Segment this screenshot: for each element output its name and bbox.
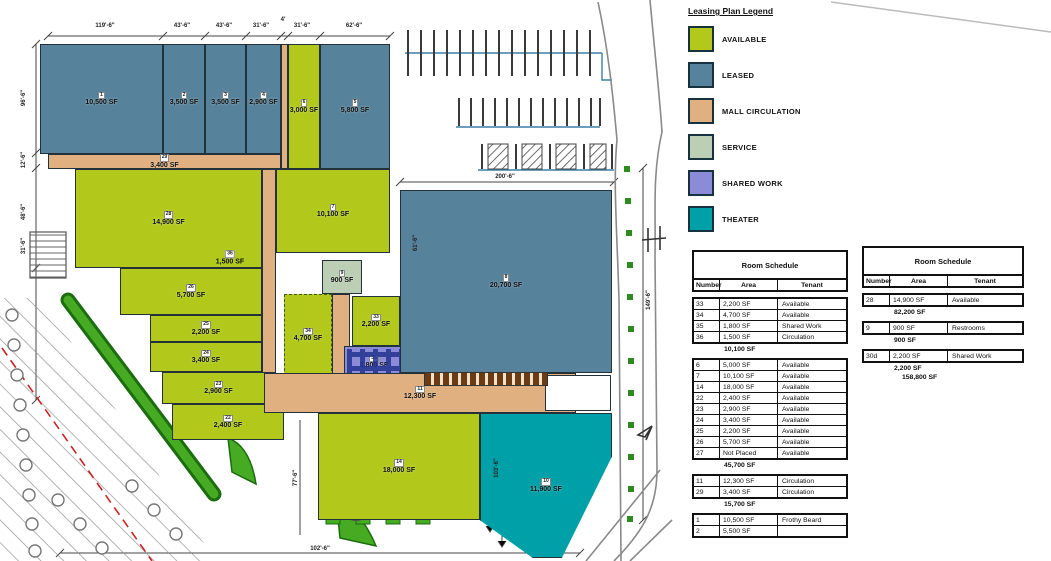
dimension-label: 103'-6" [494, 458, 500, 478]
cell-number: 2 [694, 526, 720, 536]
legend-swatch-available [688, 26, 714, 52]
unit-number: 2 [181, 92, 188, 100]
dimension-label: 61'-6" [413, 235, 419, 251]
unit-number: 4 [260, 92, 267, 100]
plan-unit-3: 33,500 SF [205, 44, 246, 154]
corridor-tables-decor [424, 372, 548, 386]
plan-unit-29: 293,400 SF [48, 154, 281, 169]
cell-number: 14 [694, 382, 720, 392]
cell-tenant: Available [778, 393, 846, 403]
cell-tenant: Available [778, 299, 846, 309]
plan-unit-5: 55,800 SF [320, 44, 390, 169]
schedule-row: 25,500 SF [694, 525, 846, 536]
legend-label: AVAILABLE [722, 35, 767, 44]
legend-swatch-theater [688, 206, 714, 232]
cell-number: 9 [864, 323, 890, 333]
column-header-area: Area [890, 276, 948, 286]
group-subtotal: 900 SF [862, 335, 1024, 344]
schedule-row: 265,700 SFAvailable [694, 436, 846, 447]
cell-area: 3,400 SF [720, 415, 778, 425]
cell-number: 35 [694, 321, 720, 331]
cell-number: 25 [694, 426, 720, 436]
legend-item-circulation: MALL CIRCULATION [688, 98, 838, 124]
unit-label: 110,500 SF [85, 91, 117, 108]
parking-row-2 [456, 98, 600, 127]
stairs [30, 232, 66, 278]
unit-number: 6 [301, 99, 308, 107]
unit-number: 29 [160, 154, 170, 162]
cell-tenant: Circulation [778, 476, 846, 486]
cell-number: 1 [694, 515, 720, 525]
dimension-label: 149'-6" [646, 290, 652, 310]
cell-number: 22 [694, 393, 720, 403]
schedule-group-2: 9900 SFRestrooms [862, 321, 1024, 335]
group-subtotal: 10,100 SF [692, 344, 848, 353]
street-trees [624, 166, 634, 522]
cell-area: 2,200 SF [720, 299, 778, 309]
schedule-group-1: 332,200 SFAvailable344,700 SFAvailable35… [692, 297, 848, 344]
unit-label: 820,700 SF [490, 273, 522, 290]
unit-label: 222,400 SF [214, 414, 242, 431]
cell-area: 2,400 SF [720, 393, 778, 403]
cell-tenant: Circulation [778, 332, 846, 342]
schedule-row: 30d2,200 SFShared Work [864, 351, 1022, 361]
unit-label: 293,400 SF [150, 153, 178, 170]
dimension-label: 77'-6" [293, 470, 299, 486]
plan-unit-x23 [545, 375, 611, 411]
legend-items: AVAILABLELEASEDMALL CIRCULATIONSERVICESH… [688, 26, 838, 232]
plan-unit-33: 332,200 SF [352, 296, 400, 346]
shared-work-desks-decor [347, 349, 401, 375]
room-schedule-title: Room Schedule [862, 246, 1024, 276]
cell-tenant: Frothy Beard [778, 515, 846, 525]
cell-number: 27 [694, 448, 720, 458]
legend-swatch-shared [688, 170, 714, 196]
legend-label: LEASED [722, 71, 754, 80]
column-header-area: Area [720, 280, 778, 290]
schedule-row: 243,400 SFAvailable [694, 414, 846, 425]
schedule-grand-total: 158,800 SF [862, 372, 1024, 381]
dimension-label: 31'-6" [253, 23, 269, 29]
schedule-group-3: 30d2,200 SFShared Work [862, 349, 1024, 363]
room-schedule-columns: NumberAreaTenant [862, 276, 1024, 288]
plan-unit-x4 [281, 44, 288, 169]
dimension-label: 12'-6" [21, 152, 27, 168]
plan-unit-6: 63,000 SF [288, 44, 320, 169]
schedule-group-1: 2814,900 SFAvailable [862, 293, 1024, 307]
cell-tenant: Available [778, 426, 846, 436]
cell-area: 1,500 SF [720, 332, 778, 342]
legend-label: THEATER [722, 215, 759, 224]
cell-tenant: Shared Work [778, 321, 846, 331]
schedule-row: 65,000 SFAvailable [694, 360, 846, 370]
cell-number: 6 [694, 360, 720, 370]
floor-plan: 110,500 SF23,500 SF33,500 SF42,900 SF63,… [0, 0, 680, 561]
cell-tenant: Available [778, 415, 846, 425]
dimension-label: 31'-6" [21, 238, 27, 254]
room-schedule-columns: NumberAreaTenant [692, 280, 848, 292]
leasing-plan-page: 110,500 SF23,500 SF33,500 SF42,900 SF63,… [0, 0, 1051, 561]
plan-unit-9: 9900 SF [322, 260, 362, 294]
legend-item-shared: SHARED WORK [688, 170, 838, 196]
schedule-row: 344,700 SFAvailable [694, 309, 846, 320]
column-header-tenant: Tenant [778, 280, 846, 290]
unit-label: 265,700 SF [177, 283, 205, 300]
cell-number: 7 [694, 371, 720, 381]
unit-label: 710,100 SF [317, 203, 349, 220]
cell-tenant: Available [778, 382, 846, 392]
cell-area: 12,300 SF [720, 476, 778, 486]
dimension-label: 43'-6" [174, 23, 190, 29]
unit-number: 22 [223, 415, 233, 423]
schedule-row: 232,900 SFAvailable [694, 403, 846, 414]
cell-tenant: Available [948, 295, 1022, 305]
unit-label: 9900 SF [331, 269, 354, 286]
schedule-row: 1112,300 SFCirculation [694, 476, 846, 486]
cell-area: 5,000 SF [720, 360, 778, 370]
schedule-group-3: 1112,300 SFCirculation293,400 SFCirculat… [692, 474, 848, 499]
cell-area: Not Placed [720, 448, 778, 458]
topright-road-line [831, 0, 1051, 40]
unit-label: 42,900 SF [249, 91, 277, 108]
legend-swatch-service [688, 134, 714, 160]
schedule-group-4: 110,500 SFFrothy Beard25,500 SF [692, 513, 848, 538]
cell-number: 33 [694, 299, 720, 309]
plan-unit-1: 110,500 SF [40, 44, 163, 154]
dimension-label: 119'-6" [95, 23, 114, 29]
plan-unit-24: 243,400 SF [150, 342, 262, 372]
cell-tenant: Available [778, 310, 846, 320]
cell-tenant: Circulation [778, 487, 846, 497]
cell-tenant: Available [778, 448, 846, 458]
schedule-row: 361,500 SFCirculation [694, 331, 846, 342]
plan-unit-x9 [262, 169, 276, 375]
plan-unit-34: 344,700 SF [284, 294, 332, 376]
column-header-number: Number [864, 276, 890, 286]
column-header-tenant: Tenant [948, 276, 1022, 286]
unit-number: 25 [201, 321, 211, 329]
plan-unit-7: 710,100 SF [276, 169, 390, 253]
cell-area: 900 SF [890, 323, 948, 333]
legend-label: SERVICE [722, 143, 757, 152]
unit-label: 232,900 SF [204, 380, 232, 397]
plan-unit-14: 1418,000 SF [318, 413, 480, 520]
legend-title: Leasing Plan Legend [688, 6, 838, 16]
unit-label: 1418,000 SF [383, 458, 415, 475]
plan-unit-8: 820,700 SF [400, 190, 612, 373]
dimension-label: 43'-6" [216, 23, 232, 29]
group-subtotal: 2,200 SF [862, 363, 1024, 372]
cell-number: 24 [694, 415, 720, 425]
unit-number: 10 [541, 478, 551, 486]
legend-item-service: SERVICE [688, 134, 838, 160]
cell-number: 36 [694, 332, 720, 342]
cell-tenant: Shared Work [948, 351, 1022, 361]
cell-tenant: Restrooms [948, 323, 1022, 333]
group-subtotal: 82,200 SF [862, 307, 1024, 316]
survey-marks [638, 226, 666, 440]
unit-label: 1011,900 SF [530, 477, 562, 494]
cell-area: 5,500 SF [720, 526, 778, 536]
unit-number: 28 [164, 211, 174, 219]
schedule-row: 2814,900 SFAvailable [864, 295, 1022, 305]
cell-number: 34 [694, 310, 720, 320]
schedule-row: 710,100 SFAvailable [694, 370, 846, 381]
leasing-plan-legend: Leasing Plan Legend AVAILABLELEASEDMALL … [688, 6, 838, 232]
room-schedule-table-1: Room ScheduleNumberAreaTenant332,200 SFA… [692, 250, 848, 561]
unit-number: 34 [303, 328, 313, 336]
cell-area: 2,200 SF [720, 426, 778, 436]
plan-unit-26: 265,700 SF [120, 268, 262, 315]
cell-area: 10,500 SF [720, 515, 778, 525]
cell-area: 10,100 SF [720, 371, 778, 381]
dimension-label: 48'-6" [21, 204, 27, 220]
schedule-row: 222,400 SFAvailable [694, 392, 846, 403]
cell-area: 5,700 SF [720, 437, 778, 447]
unit-label: 243,400 SF [192, 349, 220, 366]
cell-tenant [778, 526, 846, 536]
legend-swatch-circulation [688, 98, 714, 124]
cell-tenant: Available [778, 404, 846, 414]
plan-unit-23: 232,900 SF [162, 372, 275, 404]
unit-label: 252,200 SF [192, 320, 220, 337]
unit-number: 33 [371, 314, 381, 322]
plan-unit-4: 42,900 SF [246, 44, 281, 154]
unit-number: 23 [214, 381, 224, 389]
unit-label: 344,700 SF [294, 327, 322, 344]
unit-number: 3 [222, 92, 229, 100]
unit-number: 24 [201, 350, 211, 358]
schedule-row: 332,200 SFAvailable [694, 299, 846, 309]
unit-number: 8 [503, 274, 510, 282]
dimension-label: 96'-6" [21, 90, 27, 106]
dimension-label: 4' [281, 17, 286, 23]
column-header-number: Number [694, 280, 720, 290]
legend-item-theater: THEATER [688, 206, 838, 232]
group-subtotal: 15,700 SF [692, 499, 848, 508]
unit-number: 36 [225, 250, 235, 258]
unit-label: 1112,300 SF [404, 385, 436, 402]
cell-number: 23 [694, 404, 720, 414]
schedule-row: 293,400 SFCirculation [694, 486, 846, 497]
dimension-label: 31'-6" [294, 23, 310, 29]
unit-number: 9 [339, 270, 346, 278]
legend-swatch-leased [688, 62, 714, 88]
plan-unit-25: 252,200 SF [150, 315, 262, 342]
schedule-row: 110,500 SFFrothy Beard [694, 515, 846, 525]
schedule-group-2: 65,000 SFAvailable710,100 SFAvailable141… [692, 358, 848, 460]
schedule-row: 9900 SFRestrooms [864, 323, 1022, 333]
cell-area: 2,200 SF [890, 351, 948, 361]
cell-tenant: Available [778, 371, 846, 381]
group-subtotal: 45,700 SF [692, 460, 848, 469]
cell-number: 28 [864, 295, 890, 305]
schedule-row: 1418,000 SFAvailable [694, 381, 846, 392]
schedule-row: 252,200 SFAvailable [694, 425, 846, 436]
unit-number: 14 [394, 459, 404, 467]
unit-number: 11 [415, 386, 424, 394]
schedule-row: 27Not PlacedAvailable [694, 447, 846, 458]
cell-number: 11 [694, 476, 720, 486]
cell-number: 29 [694, 487, 720, 497]
dimension-label: 62'-6" [346, 23, 362, 29]
plan-unit-2: 23,500 SF [163, 44, 205, 154]
legend-label: SHARED WORK [722, 179, 783, 188]
cell-area: 2,900 SF [720, 404, 778, 414]
cell-area: 18,000 SF [720, 382, 778, 392]
unit-label: 2814,900 SF [152, 210, 184, 227]
unit-number: 5 [352, 99, 359, 107]
cell-number: 26 [694, 437, 720, 447]
cell-area: 4,700 SF [720, 310, 778, 320]
schedule-row: 351,800 SFShared Work [694, 320, 846, 331]
parking-row-3 [478, 144, 614, 170]
unit-label: 55,800 SF [341, 98, 369, 115]
legend-item-available: AVAILABLE [688, 26, 838, 52]
unit-label: 332,200 SF [362, 313, 390, 330]
cell-tenant: Available [778, 437, 846, 447]
room-schedule-title: Room Schedule [692, 250, 848, 280]
cell-number: 30d [864, 351, 890, 361]
unit-label: 23,500 SF [170, 91, 198, 108]
room-schedule-table-2: Room ScheduleNumberAreaTenant2814,900 SF… [862, 246, 1024, 561]
cell-area: 1,800 SF [720, 321, 778, 331]
dimension-label: 102'-6" [310, 546, 330, 552]
cell-area: 3,400 SF [720, 487, 778, 497]
unit-number: 26 [186, 284, 196, 292]
dimension-label: 200'-6" [495, 174, 515, 180]
unit-number: 1 [98, 92, 105, 100]
unit-label: 63,000 SF [290, 98, 318, 115]
unit-label: 33,500 SF [211, 91, 239, 108]
unit-number: 7 [330, 204, 337, 212]
parking-row-1 [405, 30, 612, 80]
plan-floating-label: 361,500 SF [216, 249, 244, 265]
legend-item-leased: LEASED [688, 62, 838, 88]
cell-area: 14,900 SF [890, 295, 948, 305]
legend-label: MALL CIRCULATION [722, 107, 801, 116]
cell-tenant: Available [778, 360, 846, 370]
